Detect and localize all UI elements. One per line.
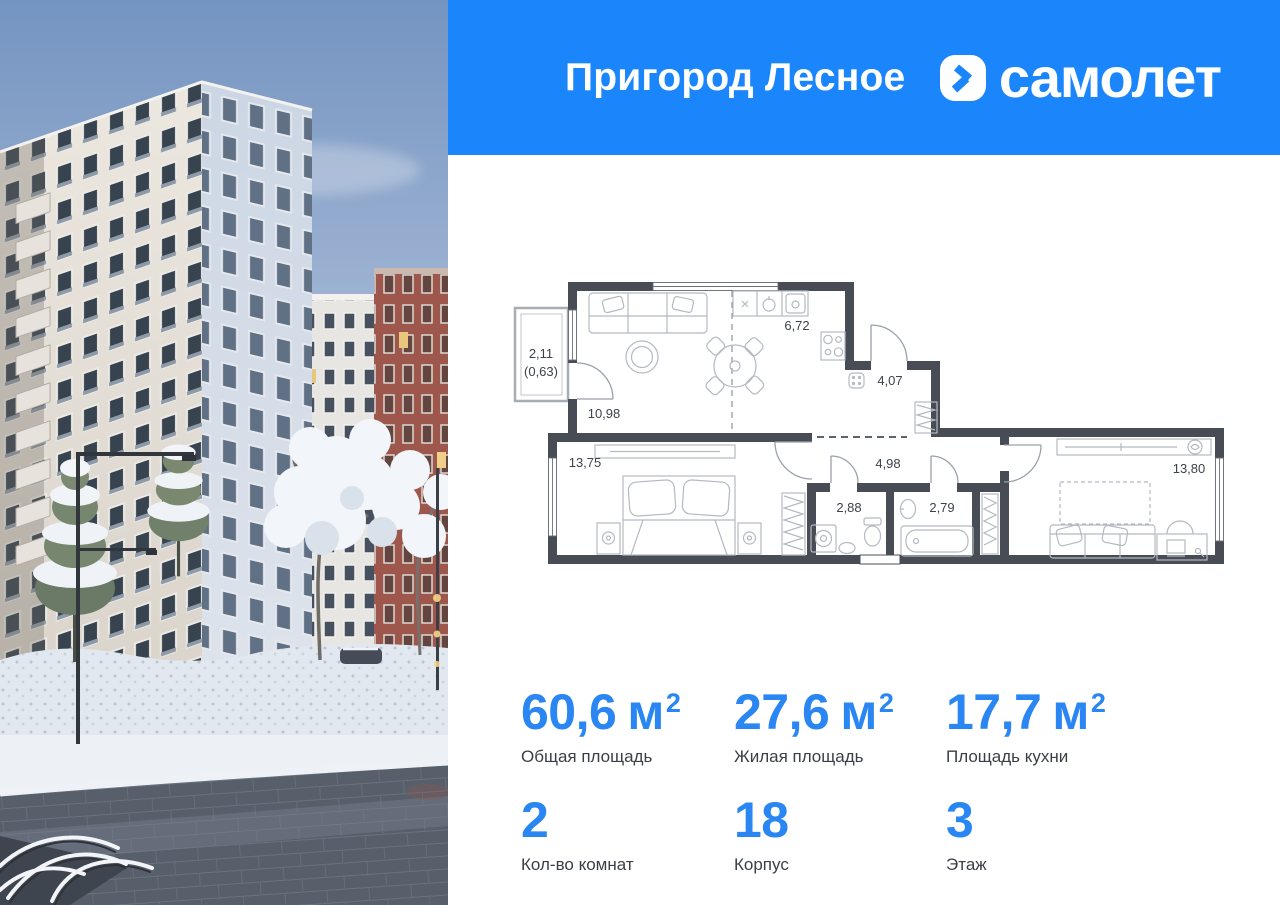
car xyxy=(340,648,382,664)
area-label-living-room: 10,98 xyxy=(588,406,621,421)
winter-buildings-render xyxy=(0,0,448,905)
stat-kitchen-area: 17,7м2 Площадь кухни xyxy=(946,676,1161,767)
area-label-bedroom1: 13,75 xyxy=(569,455,602,470)
floor-plan: 2,11 (0,63) 10,98 6,72 4,07 13,75 4,98 2… xyxy=(505,268,1245,573)
area-label-hallway: 4,07 xyxy=(877,373,902,388)
stat-building-number: 18 Корпус xyxy=(734,793,946,875)
samolet-logo-icon xyxy=(940,55,986,101)
brand-logo: самолет xyxy=(940,50,1221,106)
doors xyxy=(577,325,1041,483)
hallway-items xyxy=(849,373,864,388)
living-room-furniture xyxy=(589,293,765,396)
info-panel: Пригород Лесное самолет xyxy=(448,0,1280,905)
stat-label: Кол-во комнат xyxy=(521,854,734,875)
apartment-stats: 60,6м2 Общая площадь 27,6м2 Жилая площад… xyxy=(521,676,1201,875)
project-title: Пригород Лесное xyxy=(565,56,905,100)
brand-name: самолет xyxy=(999,50,1221,106)
area-label-wc: 2,88 xyxy=(836,500,861,515)
listing-card: Пригород Лесное самолет xyxy=(0,0,1280,905)
area-label-bedroom2: 13,80 xyxy=(1173,461,1206,476)
header-band: Пригород Лесное самолет xyxy=(448,0,1280,155)
area-label-balcony-reduced: (0,63) xyxy=(524,364,558,379)
stat-rooms-count: 2 Кол-во комнат xyxy=(521,793,734,875)
bedroom2-furniture xyxy=(1050,439,1211,560)
area-label-kitchen: 6,72 xyxy=(784,318,809,333)
bedroom1-furniture xyxy=(595,445,761,555)
area-label-corridor: 4,98 xyxy=(875,456,900,471)
stat-living-area: 27,6м2 Жилая площадь xyxy=(734,676,946,767)
stat-label: Этаж xyxy=(946,854,1161,875)
walls xyxy=(548,282,1224,564)
area-label-balcony: 2,11 xyxy=(529,346,553,361)
stat-label: Жилая площадь xyxy=(734,746,946,767)
stat-label: Площадь кухни xyxy=(946,746,1161,767)
stat-label: Корпус xyxy=(734,854,946,875)
stat-total-area: 60,6м2 Общая площадь xyxy=(521,676,734,767)
project-photo xyxy=(0,0,448,905)
stat-floor-number: 3 Этаж xyxy=(946,793,1161,875)
stat-label: Общая площадь xyxy=(521,746,734,767)
area-label-bathroom: 2,79 xyxy=(929,500,954,515)
